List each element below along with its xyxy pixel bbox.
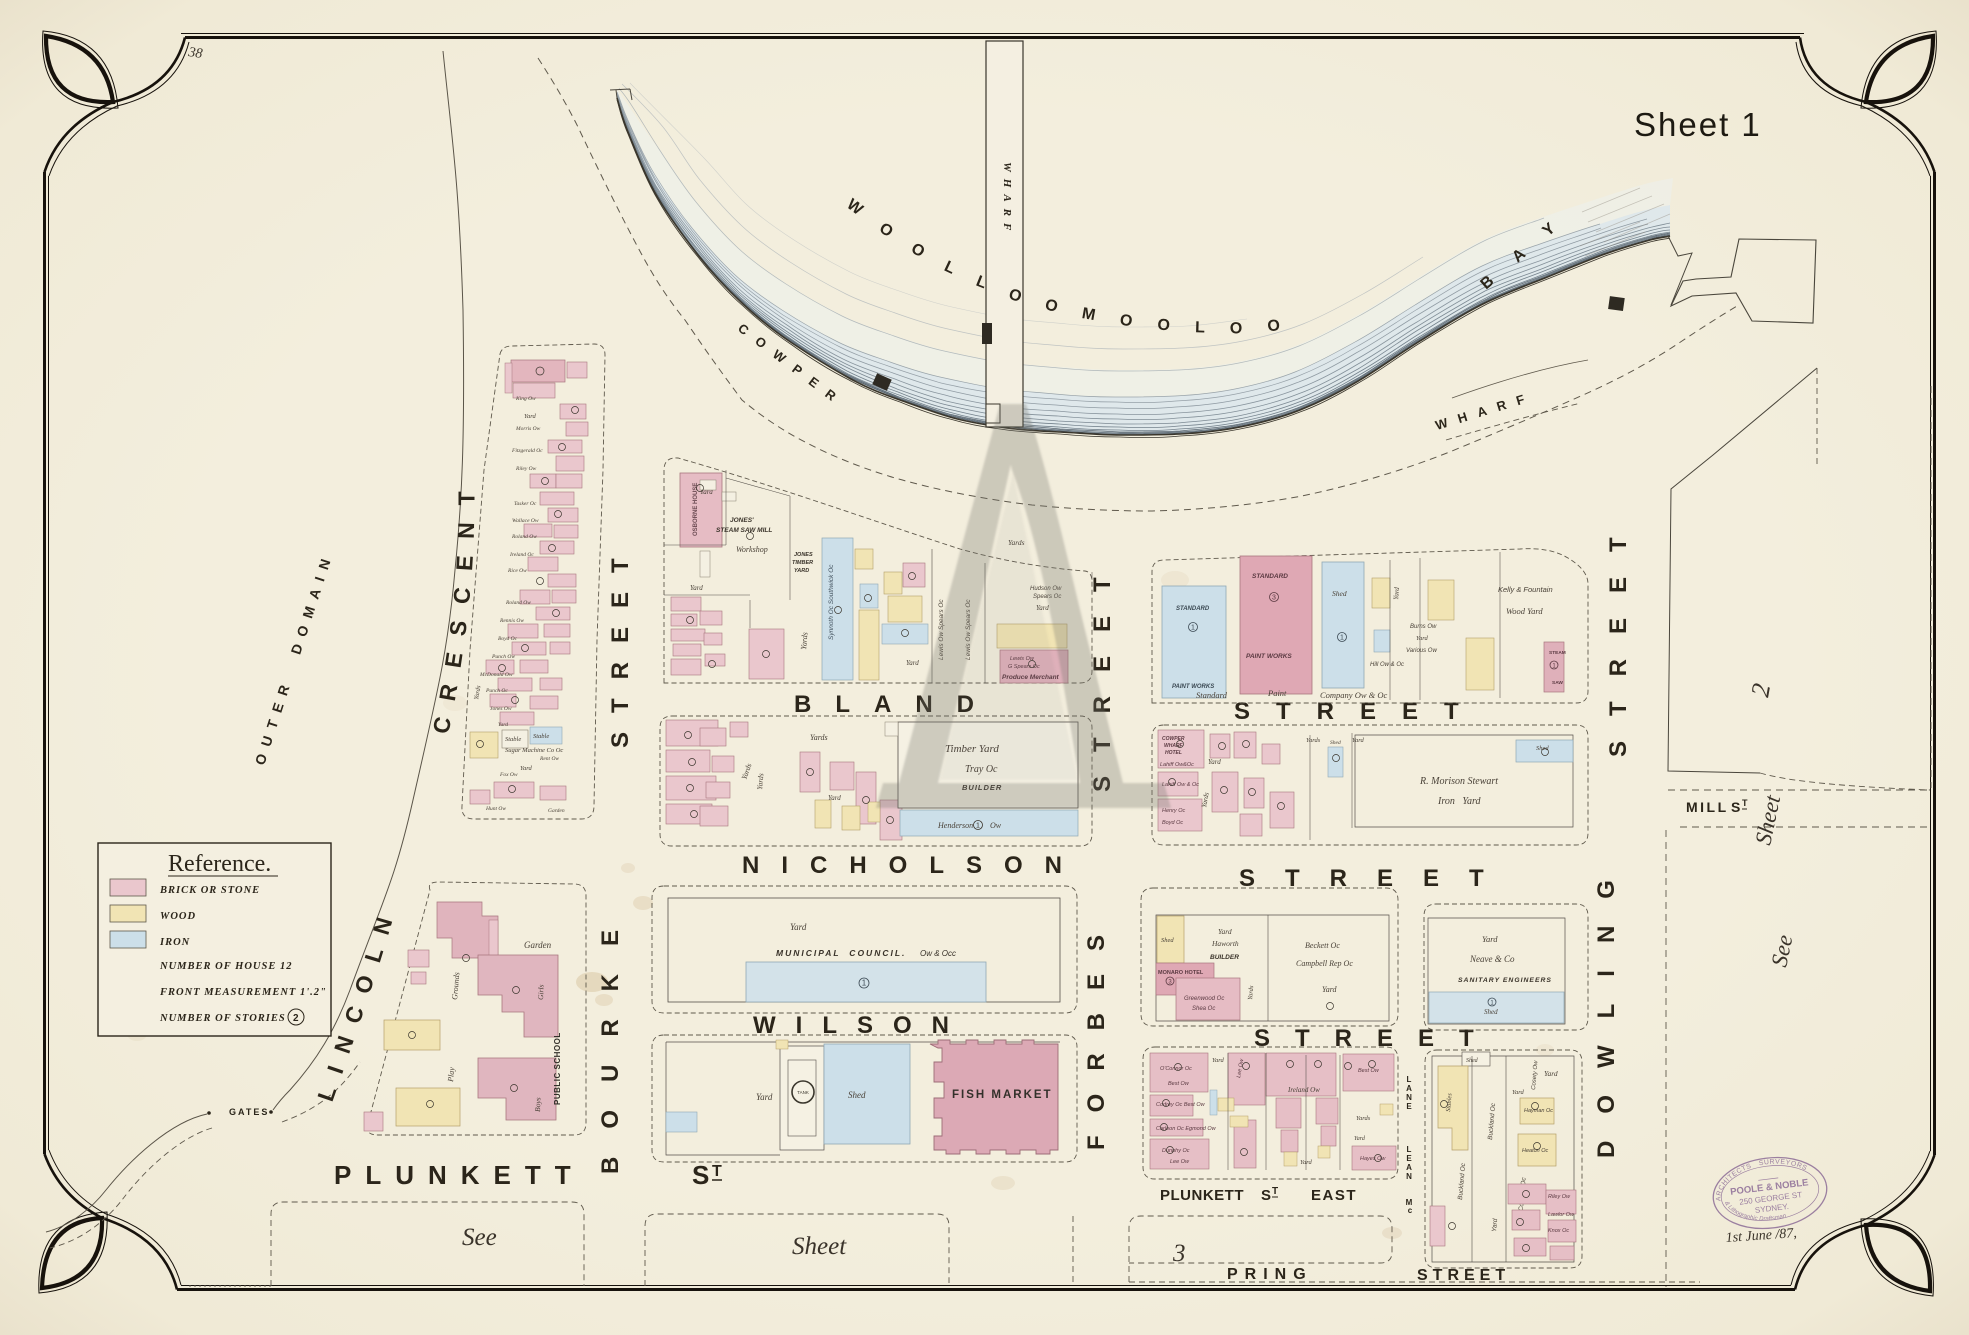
svg-text:c: c — [1408, 1206, 1413, 1215]
svg-text:WHARF: WHARF — [1001, 162, 1013, 237]
svg-text:S: S — [1731, 799, 1740, 815]
svg-text:Lahiff Ow & Oc: Lahiff Ow & Oc — [1162, 782, 1199, 788]
svg-text:Fitzgerald Oc: Fitzgerald Oc — [511, 448, 543, 454]
svg-text:Morris Ow: Morris Ow — [515, 426, 541, 432]
svg-text:NICHOLSON: NICHOLSON — [742, 852, 1084, 879]
svg-text:38: 38 — [186, 45, 203, 62]
svg-text:Henry Oc: Henry Oc — [1162, 808, 1185, 814]
svg-text:L: L — [1407, 1145, 1412, 1154]
svg-text:N: N — [1406, 1093, 1412, 1102]
svg-text:Yard: Yard — [1491, 1218, 1499, 1232]
svg-text:PLUNKETT: PLUNKETT — [334, 1160, 585, 1190]
svg-text:S: S — [692, 1160, 709, 1190]
svg-text:Shed: Shed — [848, 1090, 866, 1100]
svg-text:BRICK OR STONE: BRICK OR STONE — [159, 885, 260, 896]
svg-text:A: A — [1406, 1163, 1412, 1172]
svg-text:2: 2 — [293, 1013, 299, 1024]
svg-text:Yard: Yard — [1322, 985, 1338, 994]
svg-text:Roland Ow: Roland Ow — [511, 534, 537, 540]
svg-text:STREET: STREET — [1254, 1025, 1499, 1052]
svg-text:NUMBER OF HOUSE 12: NUMBER OF HOUSE 12 — [159, 961, 292, 972]
svg-text:Garden: Garden — [548, 808, 565, 814]
svg-text:Rent Ow: Rent Ow — [539, 756, 559, 762]
svg-text:Yards: Yards — [1306, 737, 1321, 744]
svg-text:Yard: Yard — [524, 413, 537, 420]
svg-text:Iron Yard: Iron Yard — [1437, 796, 1482, 807]
svg-text:Greenwood Oc: Greenwood Oc — [1184, 996, 1224, 1002]
svg-text:Yard: Yard — [790, 922, 807, 932]
svg-text:Yard: Yard — [1544, 1069, 1558, 1078]
svg-text:Ireland Oc: Ireland Oc — [509, 552, 534, 558]
svg-text:Riley Ow: Riley Ow — [515, 466, 537, 472]
svg-text:Beckett Oc: Beckett Oc — [1305, 941, 1340, 950]
svg-text:DOWLING: DOWLING — [1593, 853, 1620, 1158]
svg-text:Henderson: Henderson — [937, 821, 973, 830]
svg-text:TANK: TANK — [797, 1090, 809, 1095]
svg-text:Yard: Yard — [906, 659, 919, 667]
svg-text:STREET: STREET — [1239, 865, 1514, 892]
svg-text:FORBES: FORBES — [1083, 912, 1110, 1150]
svg-text:Haworth: Haworth — [1211, 939, 1239, 948]
svg-text:PRING: PRING — [1227, 1266, 1313, 1283]
svg-text:WOOD: WOOD — [160, 911, 196, 922]
svg-text:Punch Ow: Punch Ow — [491, 654, 515, 660]
svg-text:1: 1 — [1340, 634, 1344, 641]
svg-text:Ow: Ow — [990, 821, 1002, 830]
svg-text:Boyd Oc: Boyd Oc — [498, 636, 518, 642]
svg-text:Wallace Ow: Wallace Ow — [512, 518, 539, 524]
svg-text:Yard: Yard — [1212, 1057, 1225, 1064]
svg-text:Shed: Shed — [1484, 1008, 1498, 1016]
svg-text:Yard: Yard — [1392, 586, 1401, 600]
svg-text:Stable: Stable — [533, 733, 549, 740]
svg-text:Standard: Standard — [1196, 690, 1228, 700]
svg-text:Sheet: Sheet — [792, 1233, 847, 1260]
svg-text:Reference.: Reference. — [168, 851, 271, 877]
svg-text:Yard: Yard — [1352, 737, 1365, 744]
svg-text:PLUNKETT: PLUNKETT — [1160, 1187, 1244, 1204]
svg-text:STREET: STREET — [1417, 1267, 1510, 1284]
svg-text:T: T — [1742, 798, 1748, 808]
svg-text:Wood Yard: Wood Yard — [1506, 606, 1543, 616]
svg-text:YARD: YARD — [794, 568, 809, 574]
svg-text:PAINT WORKS: PAINT WORKS — [1246, 653, 1292, 660]
svg-text:Paint: Paint — [1267, 688, 1287, 698]
svg-text:Yard: Yard — [498, 722, 508, 728]
svg-text:Yard: Yard — [690, 584, 703, 592]
svg-text:Company Ow & Oc: Company Ow & Oc — [1320, 690, 1388, 700]
svg-text:STANDARD: STANDARD — [1252, 573, 1288, 580]
svg-text:Yards: Yards — [1247, 985, 1255, 1000]
svg-text:Hayman Oc: Hayman Oc — [1524, 1108, 1553, 1114]
svg-text:BUILDER: BUILDER — [1210, 954, 1239, 961]
svg-text:Yard: Yard — [1512, 1089, 1525, 1096]
svg-text:Shed: Shed — [1330, 740, 1341, 746]
svg-text:Yard: Yard — [756, 1092, 773, 1102]
svg-text:Yard: Yard — [1218, 927, 1232, 936]
svg-text:Shed: Shed — [1536, 745, 1549, 752]
svg-text:GATES: GATES — [229, 1107, 269, 1117]
svg-text:Ireland Ow: Ireland Ow — [1287, 1086, 1320, 1094]
svg-text:PUBLIC SCHOOL: PUBLIC SCHOOL — [553, 1032, 562, 1105]
svg-text:Hunt Ow: Hunt Ow — [485, 806, 506, 812]
svg-text:Shea Oc: Shea Oc — [1192, 1006, 1215, 1012]
svg-text:Yard: Yard — [828, 794, 841, 802]
svg-text:Punch Oc: Punch Oc — [485, 688, 508, 694]
svg-text:BOURKE: BOURKE — [597, 902, 624, 1174]
svg-text:Yards: Yards — [799, 632, 810, 650]
svg-text:STEAM: STEAM — [1549, 650, 1566, 656]
svg-text:NUMBER OF STORIES: NUMBER OF STORIES — [159, 1013, 286, 1024]
svg-text:STREET: STREET — [1234, 698, 1485, 725]
svg-text:E: E — [1406, 1154, 1412, 1163]
svg-text:Campbell Rep Oc: Campbell Rep Oc — [1296, 959, 1353, 968]
svg-text:Sheet 1: Sheet 1 — [1634, 106, 1762, 143]
svg-text:O'Connor Oc: O'Connor Oc — [1160, 1066, 1192, 1072]
svg-text:Shed: Shed — [1332, 589, 1347, 598]
svg-text:WHARF: WHARF — [1164, 743, 1184, 749]
svg-text:Riley Ow: Riley Ow — [1548, 1194, 1571, 1200]
svg-text:McDonald Ow: McDonald Ow — [479, 672, 513, 678]
svg-text:FRONT MEASUREMENT 1'.2": FRONT MEASUREMENT 1'.2" — [159, 987, 327, 998]
svg-text:STREET: STREET — [607, 539, 634, 748]
svg-text:Synnoth Oc Southwick Oc: Synnoth Oc Southwick Oc — [828, 564, 835, 640]
svg-text:Yard: Yard — [1482, 934, 1498, 944]
svg-text:Rennis Ow: Rennis Ow — [499, 618, 524, 624]
svg-text:Stable: Stable — [505, 736, 521, 743]
svg-text:Jones Ow: Jones Ow — [490, 706, 512, 712]
svg-text:MONARO HOTEL: MONARO HOTEL — [1158, 970, 1204, 976]
svg-text:N: N — [1406, 1172, 1412, 1181]
svg-text:IRON: IRON — [159, 937, 190, 948]
svg-text:3: 3 — [1272, 594, 1276, 601]
svg-text:Yard: Yard — [1300, 1159, 1313, 1166]
svg-text:TIMBER: TIMBER — [792, 560, 813, 566]
svg-text:STEAM SAW MILL: STEAM SAW MILL — [716, 527, 772, 534]
svg-text:Play: Play — [446, 1066, 456, 1083]
svg-text:Yards: Yards — [755, 773, 765, 790]
svg-text:Boyd Oc: Boyd Oc — [1162, 820, 1183, 826]
svg-text:A: A — [1406, 1084, 1412, 1093]
svg-text:Yard: Yard — [1208, 758, 1221, 766]
svg-text:Shed: Shed — [1161, 937, 1174, 944]
svg-text:T: T — [1272, 1186, 1278, 1197]
svg-text:L: L — [1407, 1075, 1412, 1084]
svg-text:Yard: Yard — [520, 765, 533, 772]
svg-text:EAST: EAST — [1311, 1187, 1357, 1204]
svg-text:Various Ow: Various Ow — [1406, 648, 1437, 654]
svg-text:Hill Ow & Oc: Hill Ow & Oc — [1370, 662, 1404, 668]
svg-text:MILL: MILL — [1686, 799, 1729, 815]
svg-text:Fox Ow: Fox Ow — [499, 772, 518, 778]
svg-text:S: S — [1261, 1187, 1271, 1204]
svg-text:See: See — [462, 1224, 497, 1251]
svg-text:Lee Ow: Lee Ow — [1170, 1159, 1190, 1165]
svg-text:STANDARD: STANDARD — [1176, 606, 1210, 612]
svg-text:JONES': JONES' — [730, 517, 754, 524]
svg-text:Carleon Oc Egmond Ow: Carleon Oc Egmond Ow — [1156, 1126, 1217, 1132]
svg-text:R. Morison Stewart: R. Morison Stewart — [1419, 776, 1498, 787]
svg-text:FISH MARKET: FISH MARKET — [952, 1089, 1053, 1101]
svg-text:Best Ow: Best Ow — [1358, 1068, 1380, 1074]
svg-text:Yards: Yards — [810, 733, 828, 742]
svg-text:Best Ow: Best Ow — [1168, 1081, 1190, 1087]
svg-text:SAW: SAW — [1552, 680, 1563, 686]
svg-text:Neave & Co: Neave & Co — [1469, 954, 1515, 964]
svg-text:SANITARY ENGINEERS: SANITARY ENGINEERS — [1458, 977, 1552, 984]
svg-text:Ow & Occ: Ow & Occ — [920, 949, 956, 958]
svg-text:Sugar Machine Co Oc: Sugar Machine Co Oc — [505, 747, 563, 754]
svg-text:Hayes Ow: Hayes Ow — [1360, 1156, 1386, 1162]
svg-text:Roland Ow: Roland Ow — [505, 600, 531, 606]
svg-text:STREET: STREET — [1605, 512, 1632, 757]
svg-text:Dunphy Oc: Dunphy Oc — [1162, 1148, 1190, 1154]
svg-text:JONES: JONES — [794, 552, 813, 558]
svg-text:Tasker Oc: Tasker Oc — [514, 501, 537, 507]
svg-text:1: 1 — [1191, 624, 1195, 631]
svg-text:Rice Ow: Rice Ow — [507, 568, 527, 574]
svg-text:1: 1 — [976, 822, 980, 829]
svg-text:Girls: Girls — [536, 984, 546, 1000]
svg-text:T: T — [712, 1163, 722, 1180]
svg-text:Workshop: Workshop — [736, 545, 768, 554]
svg-text:Boys: Boys — [533, 1097, 543, 1112]
svg-text:Kelly & Fountain: Kelly & Fountain — [1498, 585, 1553, 594]
svg-text:HOTEL: HOTEL — [1165, 750, 1182, 756]
svg-text:E: E — [1406, 1102, 1412, 1111]
svg-text:Burns Ow: Burns Ow — [1410, 624, 1437, 630]
svg-text:Lawlor Ow: Lawlor Ow — [1548, 1212, 1575, 1218]
svg-text:Yards: Yards — [1356, 1115, 1371, 1122]
svg-text:Yard: Yard — [1354, 1136, 1366, 1142]
svg-text:Yard: Yard — [1416, 635, 1429, 642]
svg-text:Knox Oc: Knox Oc — [1548, 1228, 1569, 1234]
svg-text:Lahiff Ow&Oc: Lahiff Ow&Oc — [1160, 762, 1194, 768]
svg-text:1: 1 — [862, 978, 867, 987]
svg-text:MUNICIPAL COUNCIL.: MUNICIPAL COUNCIL. — [776, 948, 906, 958]
svg-text:Garden: Garden — [524, 940, 552, 950]
svg-text:Shed: Shed — [1466, 1058, 1479, 1064]
svg-text:King Ow: King Ow — [515, 396, 536, 402]
